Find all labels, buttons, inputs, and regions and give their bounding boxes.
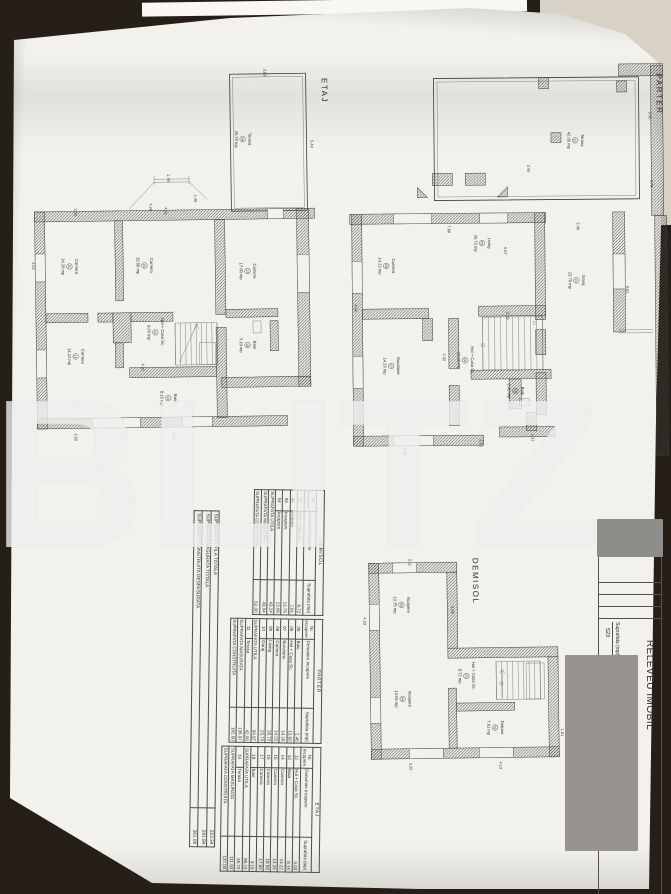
floor-table-parter: PARTERNr. IncapereDenumire IncapereSupra… — [229, 617, 324, 744]
svg-text:Terasa: Terasa — [580, 134, 585, 147]
svg-text:13: 13 — [166, 396, 170, 400]
terrace-outline — [433, 77, 639, 201]
surface-value: 523 — [604, 628, 610, 637]
dimension-label: 5.67 — [503, 247, 508, 255]
svg-text:Living: Living — [487, 238, 492, 250]
svg-text:11: 11 — [573, 139, 577, 143]
svg-text:13.75 mp: 13.75 mp — [393, 596, 398, 614]
svg-text:Camera: Camera — [149, 258, 154, 274]
svg-text:Garaj: Garaj — [581, 275, 586, 285]
dimension-label: 4.52 — [31, 262, 36, 270]
svg-text:9.03 mp: 9.03 mp — [147, 325, 152, 341]
dimension-label: 3.25 — [408, 763, 413, 771]
svg-text:07: 07 — [389, 364, 393, 368]
room-label-09: Living0926.73 mp — [473, 235, 492, 253]
svg-text:Hol + Casa Sc.: Hol + Casa Sc. — [471, 662, 476, 690]
svg-text:Camera: Camera — [391, 258, 396, 274]
svg-text:Incapere: Incapere — [407, 691, 412, 708]
stair-landing — [526, 663, 545, 699]
svg-text:17: 17 — [245, 269, 249, 273]
svg-text:3.19 mp: 3.19 mp — [239, 338, 244, 354]
svg-text:26.70 mp: 26.70 mp — [234, 131, 239, 149]
dimension-label: 2.30 — [648, 112, 653, 120]
room-label-18: Baie183.19 mp — [239, 338, 258, 354]
svg-text:13.60 mp: 13.60 mp — [456, 352, 461, 370]
redaction-box — [597, 519, 663, 557]
svg-text:Hol + Casa Sc.: Hol + Casa Sc. — [160, 318, 165, 346]
svg-text:03: 03 — [399, 603, 403, 607]
stairs — [483, 317, 543, 371]
room-label-13: Baia138.15 mp — [159, 391, 178, 407]
room-label-17: Camera1717.80 mp — [239, 262, 258, 280]
dimension-label: 2.40 — [526, 165, 531, 173]
room-label-11: Terasa1142.00 mp — [566, 132, 585, 150]
dimension-label: 2.50 — [479, 439, 484, 447]
room-label-01: Hol + Casa Sc.018.72 mp — [458, 662, 477, 690]
svg-text:Incapere: Incapere — [406, 597, 411, 614]
svg-text:Terasa: Terasa — [247, 133, 252, 146]
room-label-19: Terasa1926.70 mp — [234, 130, 253, 148]
dimension-label: 4.23 — [362, 617, 367, 625]
dimension-label: 4.32 — [442, 353, 447, 361]
dimension-label: 3.30 — [403, 448, 408, 456]
dimension-label: 4.31 — [141, 363, 146, 371]
svg-text:42.00 mp: 42.00 mp — [566, 132, 571, 150]
svg-text:17.80 mp: 17.80 mp — [239, 263, 244, 281]
svg-text:Debara: Debara — [500, 721, 505, 735]
svg-text:13.06 mp: 13.06 mp — [394, 690, 399, 708]
room-label-08: Camera0814.22 mp — [378, 257, 397, 275]
svg-text:16: 16 — [142, 264, 146, 268]
room-label-06: Hol + Casa Sc.0613.60 mp — [456, 346, 475, 374]
svg-text:04: 04 — [400, 697, 404, 701]
stairs — [175, 322, 218, 365]
table-row: Nr. IncapereDenumire IncapereSuprafata (… — [303, 490, 317, 615]
dimension-label: 5.61 — [625, 286, 630, 294]
svg-text:15: 15 — [67, 265, 71, 269]
dimension-label: 4.31 — [163, 207, 168, 215]
floor-plan-parter: PARTER — [328, 54, 671, 457]
table-row: Nr. IncapereDenumire IncapereSuprafata (… — [301, 619, 315, 744]
svg-text:02: 02 — [493, 726, 497, 730]
svg-text:18: 18 — [245, 343, 249, 347]
svg-text:7.61 mp: 7.61 mp — [486, 720, 491, 736]
svg-text:18.58 mp: 18.58 mp — [136, 257, 141, 275]
dimension-label: 5.05 — [450, 606, 455, 614]
room-label-07: Bucatarie0714.26 mp — [382, 357, 401, 376]
room-label-10: Garaj1023.70 mp — [568, 272, 587, 290]
dimension-label: 7.88 — [447, 225, 452, 233]
dimension-label: 5.40 — [309, 140, 314, 148]
dimension-label: 4.92 — [353, 304, 358, 312]
title-block-rule — [599, 606, 661, 607]
walls-demisol — [369, 561, 560, 760]
svg-text:09: 09 — [480, 241, 484, 245]
dimension-label: 2.48 — [576, 222, 581, 230]
dimension-label: 4.13 — [498, 761, 503, 769]
floor-table-demisol: DEMISOLNr. IncapereDenumire IncapereSupr… — [252, 489, 325, 615]
floor-tables-row: DEMISOLNr. IncapereDenumire IncapereSupr… — [220, 489, 325, 880]
svg-text:14.26 mp: 14.26 mp — [61, 258, 66, 276]
room-label-03: Incapere0313.75 mp — [393, 596, 412, 614]
stairs — [496, 661, 541, 700]
dimension-label: 3.30 — [73, 208, 78, 216]
dimension-label: 2.78 — [649, 180, 654, 188]
svg-text:Camera: Camera — [74, 259, 79, 275]
room-label-04: Incapere0413.06 mp — [394, 690, 413, 708]
tables-strip: DEMISOLNr. IncapereDenumire IncapereSupr… — [189, 488, 325, 880]
svg-text:14.26 mp: 14.26 mp — [382, 357, 387, 375]
svg-text:Baia: Baia — [173, 394, 178, 403]
floor-plan-demisol: DEMISOL Incapere0313.75 mpIncapere0413.0… — [358, 547, 571, 775]
svg-text:14.22 mp: 14.22 mp — [67, 348, 72, 366]
svg-text:26.73 mp: 26.73 mp — [473, 235, 478, 253]
svg-text:14.22 mp: 14.22 mp — [378, 257, 383, 275]
scanned-floor-plan-photo: { "watermark": "BLITZ", "title_block": {… — [0, 0, 671, 890]
terrace-columns — [416, 77, 627, 198]
dimension-label: 3.83 — [262, 69, 267, 77]
svg-text:19: 19 — [240, 137, 244, 141]
room-label-16: Camera1618.58 mp — [136, 257, 155, 275]
dimension-label: 4.26 — [148, 203, 153, 211]
room-label-12: Hol + Casa Sc.129.03 mp — [146, 318, 165, 346]
svg-text:23.70 mp: 23.70 mp — [568, 272, 573, 290]
svg-text:Baie: Baie — [520, 387, 525, 396]
svg-text:14: 14 — [73, 355, 77, 359]
floor-table-etaj: ETAJNr. IncapereDenumire IncapereSuprafa… — [220, 746, 322, 873]
dimension-label: 3.11 — [408, 559, 413, 566]
releveu-title: RELEVEU IMOBIL — [644, 630, 655, 740]
svg-text:12: 12 — [153, 330, 157, 334]
svg-text:Camera: Camera — [252, 263, 257, 279]
dimension-label: 1.79 — [166, 174, 171, 182]
dimension-label: 1.31 — [531, 434, 536, 442]
plan-title-demisol: DEMISOL — [471, 558, 481, 605]
terrace-outline — [230, 73, 308, 211]
title-block-rule — [599, 618, 661, 619]
svg-text:Baie: Baie — [252, 341, 257, 350]
surface-label: Suprafata (mp) — [612, 622, 620, 655]
svg-text:10: 10 — [574, 278, 578, 282]
svg-text:Bucatarie: Bucatarie — [396, 357, 401, 375]
redaction-box — [565, 655, 638, 851]
dimension-label: 1.46 — [193, 195, 198, 203]
floor-plan-etaj: ETAJ Terasa1926.70 mpCamera1514.26 mpCa — [27, 58, 332, 442]
room-label-02: Debara027.61 mp — [486, 720, 505, 736]
room-label-14: Camera1414.22 mp — [67, 348, 86, 366]
stair-post — [533, 321, 536, 324]
svg-text:06: 06 — [463, 358, 467, 362]
summary-table: SUPRAFATA UTILA TOTALA223.34SUPRAFATA MA… — [189, 510, 219, 847]
terrace-inner-line — [233, 76, 305, 208]
dimension-label: 4.31 — [172, 432, 177, 440]
svg-text:08: 08 — [384, 264, 388, 268]
bath-fixture — [253, 321, 261, 333]
svg-text:Hol + Casa Sc.: Hol + Casa Sc. — [470, 346, 475, 374]
dimension-label: 3.50 — [74, 433, 79, 441]
stair-arrow — [500, 669, 505, 697]
svg-text:2.46 mp: 2.46 mp — [507, 384, 512, 400]
svg-text:8.72 mp: 8.72 mp — [458, 669, 463, 685]
title-block-rule — [599, 594, 661, 595]
svg-text:Camera: Camera — [80, 349, 85, 365]
room-label-15: Camera1514.26 mp — [61, 258, 80, 276]
svg-text:8.15 mp: 8.15 mp — [159, 391, 164, 407]
svg-text:05: 05 — [513, 389, 517, 393]
title-block-rule — [599, 582, 661, 583]
svg-text:01: 01 — [464, 674, 468, 678]
table-row: Nr. IncapereDenumire IncapereSuprafata (… — [299, 747, 313, 872]
dimension-label: 2.33 — [505, 312, 510, 320]
